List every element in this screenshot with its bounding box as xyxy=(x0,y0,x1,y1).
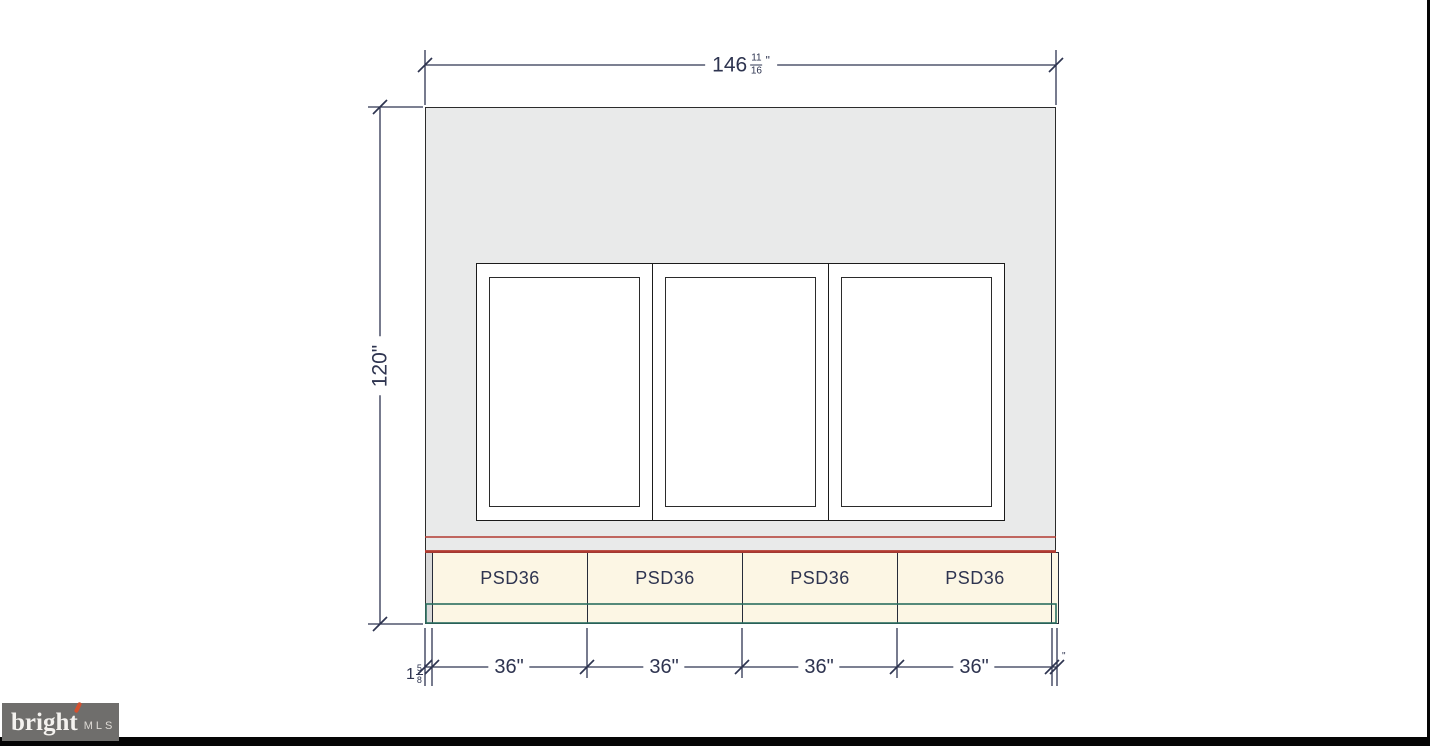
top-width-unit: " xyxy=(766,55,770,67)
cabinet-width-dimension-2: 36" xyxy=(643,657,684,677)
cabinet-width-dimension-4: 36" xyxy=(953,657,994,677)
dimension-ticks xyxy=(373,58,1064,674)
top-width-whole: 146 xyxy=(712,55,747,76)
dimension-lines xyxy=(368,50,1057,686)
countertop-lines xyxy=(425,537,1056,552)
bottom-black-bar xyxy=(0,737,1430,746)
top-width-dimension: 146 11 16 " xyxy=(705,54,777,77)
wall-height-dimension: 120" xyxy=(370,337,391,396)
watermark-brand-text: bright xyxy=(11,710,78,735)
elevation-drawing-page: PSD36 PSD36 PSD36 PSD36 xyxy=(0,0,1430,746)
filler-fraction: 5 8 xyxy=(416,664,423,685)
right-filler-dimension-mark: " xyxy=(1062,652,1066,662)
watermark-suffix-text: MLS xyxy=(84,720,116,732)
filler-unit: " xyxy=(424,664,427,673)
cabinet-width-dimension-3: 36" xyxy=(798,657,839,677)
toe-kick-outline xyxy=(426,604,1056,623)
cabinet-width-dimension-1: 36" xyxy=(488,657,529,677)
left-filler-dimension: 1 5 8 " xyxy=(406,664,427,685)
dimension-linework xyxy=(0,0,1430,746)
filler-whole: 1 xyxy=(406,667,415,683)
brightmls-watermark: bright MLS xyxy=(2,703,119,741)
top-width-fraction: 11 16 xyxy=(750,54,762,77)
